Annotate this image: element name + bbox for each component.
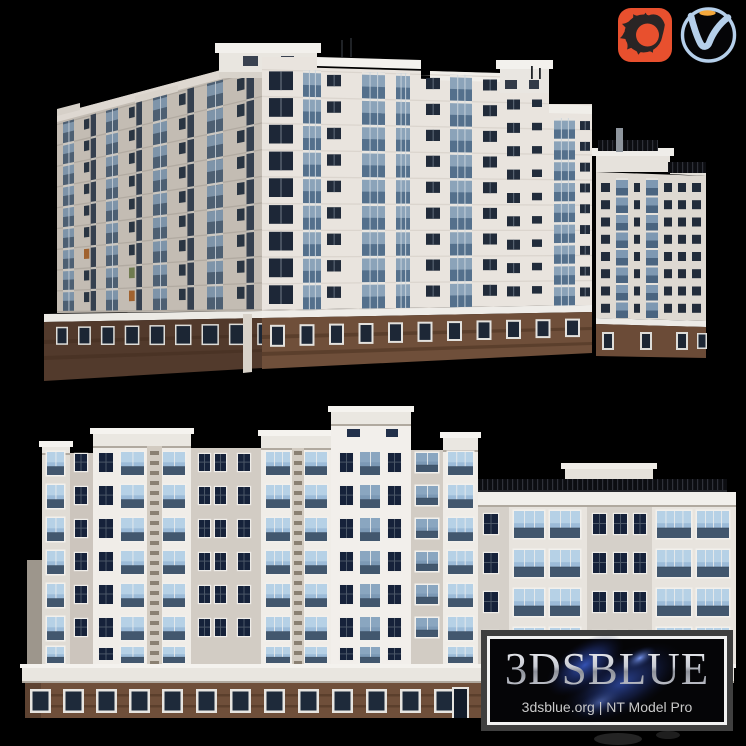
svg-text:3dsblue.org | NT Model Pro: 3dsblue.org | NT Model Pro	[522, 699, 693, 715]
svg-text:3DSBLUE: 3DSBLUE	[505, 644, 710, 694]
